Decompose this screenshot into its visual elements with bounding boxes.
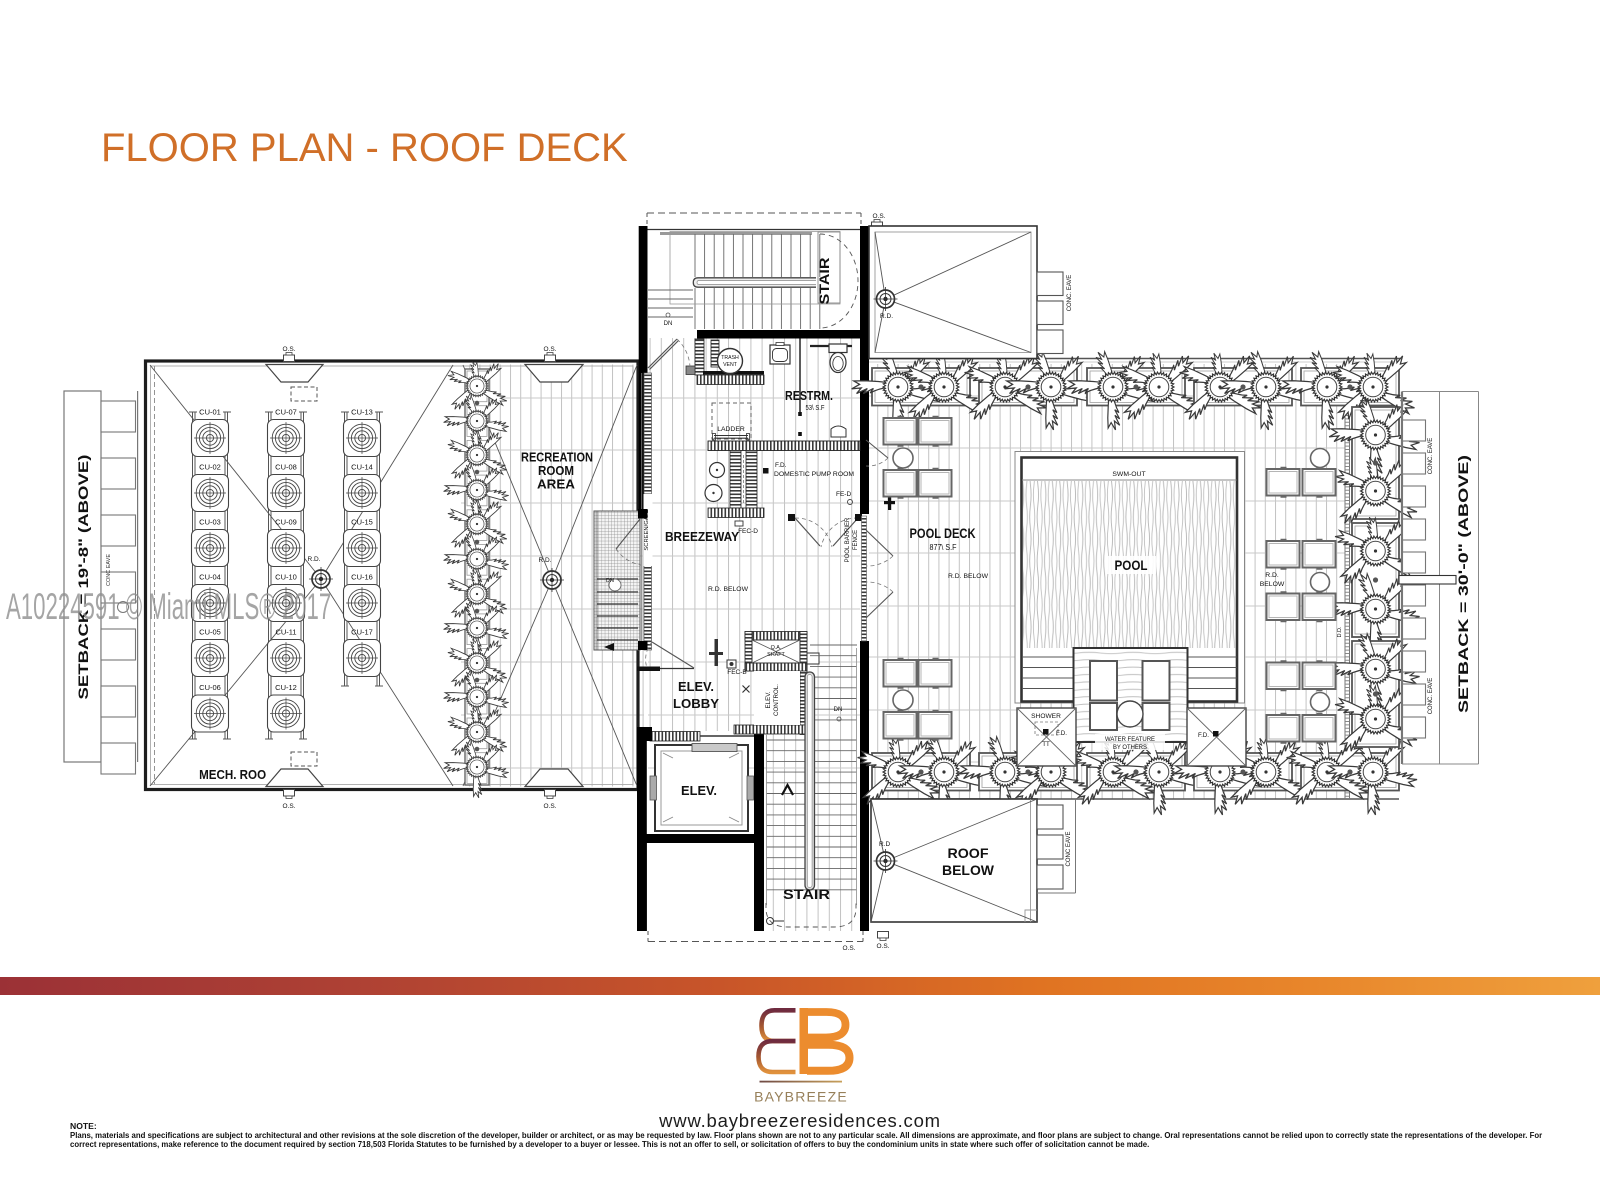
svg-text:O.S.: O.S. [872,213,885,220]
svg-text:O.S.: O.S. [543,346,556,353]
svg-text:LADDER: LADDER [717,426,745,433]
svg-text:53\ S.F: 53\ S.F [806,403,825,412]
svg-text:CU-12: CU-12 [275,683,297,692]
svg-text:R.D: R.D [879,841,891,848]
svg-text:CONC. EAVE: CONC. EAVE [1428,438,1434,475]
svg-text:O.S.: O.S. [543,803,556,810]
svg-text:CU-02: CU-02 [199,463,221,472]
svg-text:STAIR: STAIR [783,887,830,902]
svg-text:ELEV.: ELEV. [681,783,717,798]
svg-text:R.D.: R.D. [1265,572,1279,579]
svg-text:CU-16: CU-16 [351,573,373,582]
svg-text:LOBBY: LOBBY [673,696,719,711]
svg-text:BELOW: BELOW [1260,581,1285,588]
svg-text:R.D.: R.D. [539,557,552,564]
svg-text:DN: DN [834,707,843,713]
svg-text:CU-06: CU-06 [199,683,221,692]
svg-text:R.D.: R.D. [308,556,321,563]
svg-text:DN: DN [606,578,614,584]
svg-text:CU-11: CU-11 [275,628,296,637]
svg-text:CONC EAVE: CONC EAVE [106,554,112,586]
svg-text:ELEV.: ELEV. [678,679,714,694]
svg-text:R.D. BELOW: R.D. BELOW [708,586,749,593]
svg-text:ELEV.: ELEV. [765,691,772,708]
svg-text:CU-10: CU-10 [275,573,297,582]
svg-text:CONC. EAVE: CONC. EAVE [1428,678,1434,715]
svg-text:RESTRM.: RESTRM. [785,388,833,403]
svg-text:BY OTHERS: BY OTHERS [1113,744,1147,751]
svg-text:BAYBREEZE: BAYBREEZE [754,1089,848,1105]
svg-text:VENT: VENT [723,362,738,368]
svg-text:WATER FEATURE: WATER FEATURE [1105,736,1155,743]
svg-text:STAIR: STAIR [817,257,832,304]
svg-text:D.D.: D.D. [1337,626,1343,637]
svg-text:CONC EAVE: CONC EAVE [1066,832,1072,867]
svg-text:FEC-B: FEC-B [727,669,747,676]
svg-text:CU-13: CU-13 [351,408,373,417]
svg-text:FENCE: FENCE [853,530,859,550]
svg-text:POOL: POOL [1115,557,1148,573]
svg-text:SHAFT: SHAFT [767,652,785,658]
svg-text:SHOWER: SHOWER [1031,713,1061,720]
svg-text:R.D.: R.D. [880,313,893,320]
svg-text:Q.A.: Q.A. [771,645,782,651]
svg-text:SETBACK = 19'-8" (ABOVE): SETBACK = 19'-8" (ABOVE) [75,455,91,700]
svg-text:FE-D: FE-D [836,491,851,498]
svg-text:SETBACK = 30'-0" (ABOVE): SETBACK = 30'-0" (ABOVE) [1455,455,1471,713]
svg-text:O.S.: O.S. [282,803,295,810]
svg-text:877\ S.F: 877\ S.F [930,543,957,552]
svg-text:POOL BARRIER: POOL BARRIER [845,517,851,562]
svg-text:FEC-D: FEC-D [738,528,758,535]
svg-text:CU-01: CU-01 [199,408,221,417]
svg-text:POOL DECK: POOL DECK [910,526,976,541]
svg-text:TT: TT [1042,741,1050,748]
svg-text:O.S.: O.S. [876,943,889,950]
svg-text:F.D.: F.D. [1198,732,1209,739]
svg-text:CU-09: CU-09 [275,518,297,527]
svg-text:CU-05: CU-05 [199,628,221,637]
svg-text:DN: DN [664,321,673,327]
svg-text:MECH. ROO: MECH. ROO [199,767,266,782]
svg-text:CU-03: CU-03 [199,518,221,527]
svg-text:CU-04: CU-04 [199,573,221,582]
svg-text:CONC. EAVE: CONC. EAVE [1067,275,1073,312]
svg-text:CONTROL.: CONTROL. [773,684,780,716]
svg-text:TRASH: TRASH [721,355,739,361]
svg-text:O.S.: O.S. [282,346,295,353]
svg-text:CU-17: CU-17 [351,628,373,637]
svg-text:ROOF: ROOF [948,846,989,861]
svg-text:O.S.: O.S. [842,945,855,952]
svg-text:CU-15: CU-15 [351,518,373,527]
svg-text:CU-07: CU-07 [275,408,297,417]
svg-text:CU-08: CU-08 [275,463,297,472]
svg-text:F.D.: F.D. [1056,730,1067,737]
svg-text:BELOW: BELOW [942,863,994,878]
svg-text:AREA: AREA [537,477,576,492]
svg-text:DOMESTIC PUMP ROOM: DOMESTIC PUMP ROOM [774,471,854,478]
svg-text:R.D. BELOW: R.D. BELOW [948,573,989,580]
svg-text:SWM-OUT: SWM-OUT [1112,471,1145,478]
svg-text:BREEZEWAY: BREEZEWAY [665,529,739,544]
svg-text:CU-14: CU-14 [351,463,373,472]
svg-text:F.D.: F.D. [775,462,787,469]
